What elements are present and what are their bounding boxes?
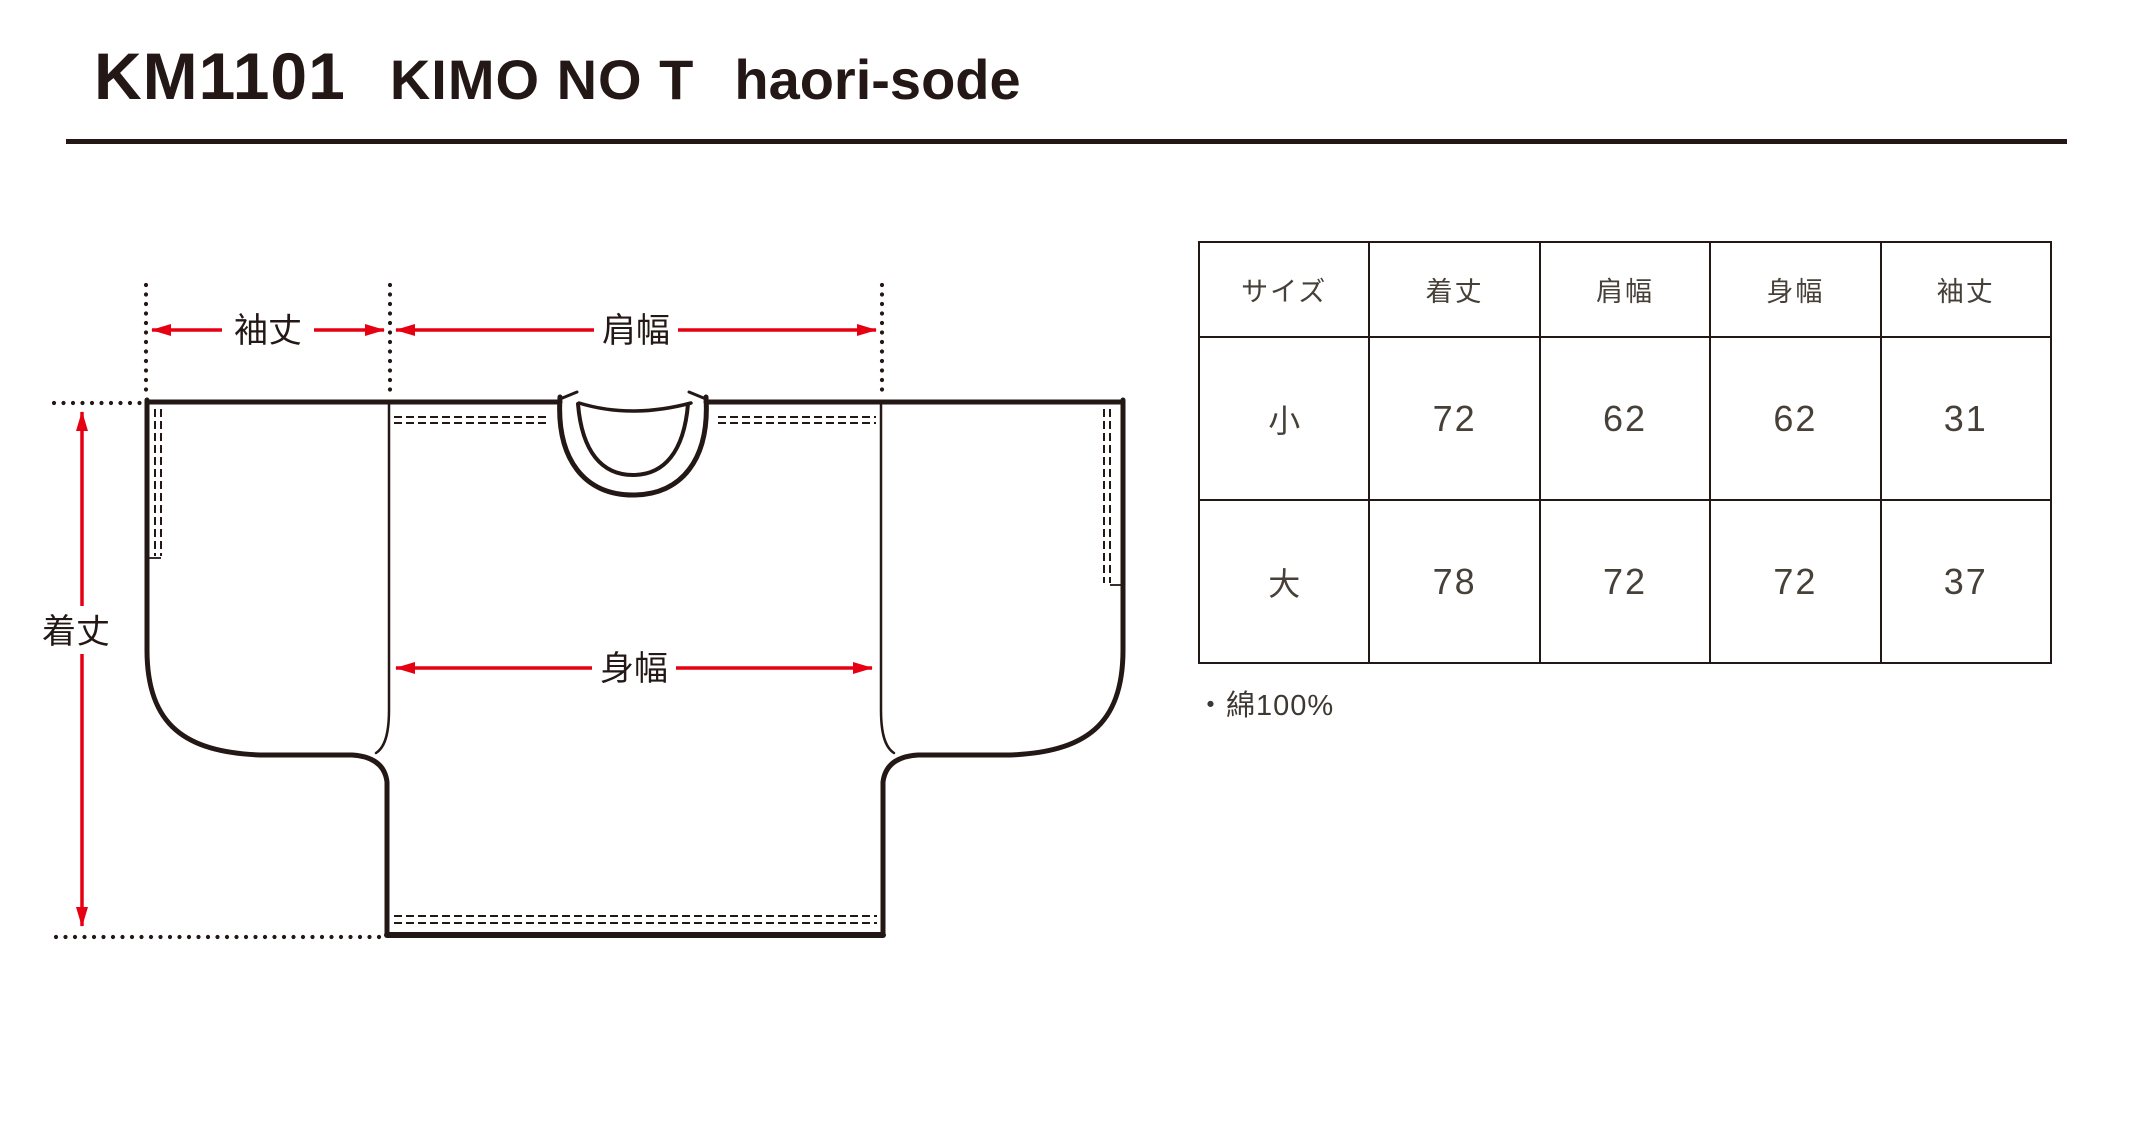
table-header-cell: 身幅: [1710, 242, 1880, 337]
sleeve-length-label: 袖丈: [234, 312, 302, 350]
collar-tip-right: [689, 392, 706, 399]
table-header-cell: サイズ: [1199, 242, 1369, 337]
stitch-ticks: [149, 558, 1122, 585]
table-header-cell: 袖丈: [1881, 242, 2051, 337]
table-header-cell: 着丈: [1369, 242, 1539, 337]
body-side-right: [881, 404, 894, 753]
size-label-cell: 小: [1199, 337, 1369, 500]
table-cell: 72: [1540, 500, 1710, 663]
body-side-left: [376, 404, 389, 753]
table-row: 小 72 62 62 31: [1199, 337, 2051, 500]
table-header-cell: 肩幅: [1540, 242, 1710, 337]
table-cell: 62: [1710, 337, 1880, 500]
spec-sheet-page: KM1101 KIMO NO T haori-sode: [0, 0, 2143, 1128]
table-cell: 72: [1369, 337, 1539, 500]
size-table: サイズ 着丈 肩幅 身幅 袖丈 小 72 62 62 31 大 78 72 72…: [1198, 241, 2052, 664]
shoulder-width-label: 肩幅: [602, 312, 670, 350]
table-cell: 78: [1369, 500, 1539, 663]
table-cell: 72: [1710, 500, 1880, 663]
table-cell: 37: [1881, 500, 2051, 663]
back-neckline: [579, 403, 691, 411]
dotted-guides: [54, 285, 882, 937]
measure-arrows: [82, 330, 876, 926]
table-cell: 31: [1881, 337, 2051, 500]
table-row: 大 78 72 72 37: [1199, 500, 2051, 663]
collar-tip-left: [560, 392, 577, 399]
body-length-label: 着丈: [42, 613, 110, 651]
body-width-label: 身幅: [600, 650, 668, 688]
left-sleeve-outline: [147, 400, 387, 935]
table-header-row: サイズ 着丈 肩幅 身幅 袖丈: [1199, 242, 2051, 337]
right-sleeve-outline: [883, 400, 1123, 935]
table-cell: 62: [1540, 337, 1710, 500]
material-note: ・綿100%: [1196, 682, 1334, 724]
size-label-cell: 大: [1199, 500, 1369, 663]
collar-inner-seam: [578, 404, 688, 475]
